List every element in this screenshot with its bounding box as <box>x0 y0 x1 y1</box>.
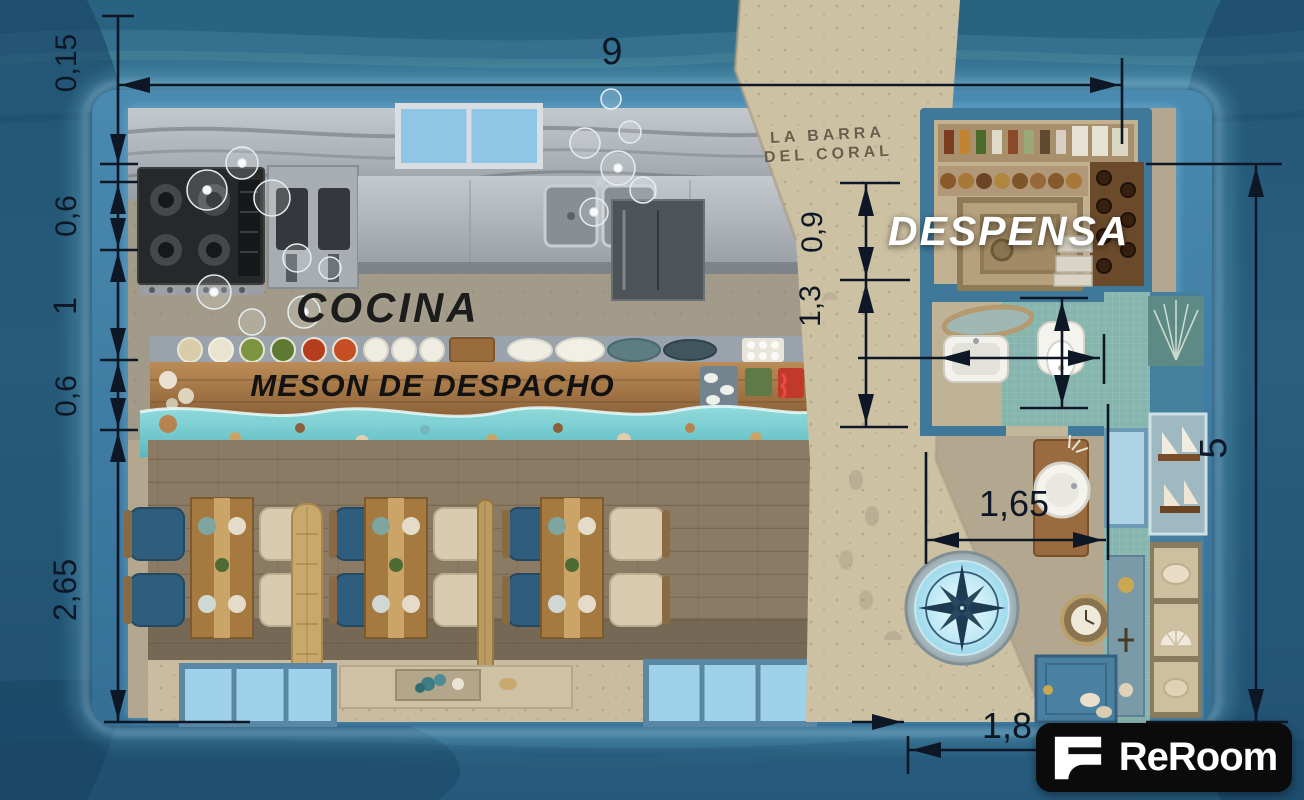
floorplan-canvas: 9 0,15 0,6 1 0,6 2,65 0,9 1,3 5 1,65 1,8… <box>0 0 1304 800</box>
dim-pantry-depth: 0,9 <box>796 211 829 253</box>
dim-wall-offset: 0,15 <box>50 34 83 92</box>
refrigerator <box>612 200 704 300</box>
side-window <box>1106 430 1146 526</box>
skylight-window <box>398 106 540 166</box>
bathroom <box>920 292 1116 436</box>
dim-kitchen-aisle: 1 <box>47 297 83 315</box>
entry-door <box>1036 656 1116 722</box>
reroom-watermark: ReRoom <box>1036 723 1292 792</box>
reroom-logo-icon <box>1051 734 1105 782</box>
dim-total-width: 9 <box>601 31 622 73</box>
spice-bowls-row <box>150 336 815 364</box>
ship-display-case <box>1150 414 1206 534</box>
service-counter-label: MESON DE DESPACHO <box>150 368 715 404</box>
dim-dining-depth: 2,65 <box>47 559 83 621</box>
pantry-label: DESPENSA <box>888 208 1130 255</box>
dim-total-height: 5 <box>1193 437 1235 458</box>
compass-rose-medallion <box>906 552 1018 664</box>
dim-vanity-width: 1,65 <box>979 483 1049 524</box>
dim-entry-width: 1,8 <box>982 705 1032 746</box>
kitchen-label: COCINA <box>296 284 480 332</box>
dim-kitchen-run: 0,6 <box>50 195 83 237</box>
dim-bathroom-depth: 1,3 <box>794 285 827 327</box>
pantry-room <box>920 108 1152 296</box>
coral-planter <box>340 666 572 708</box>
rattan-divider <box>292 504 322 678</box>
dim-counter-depth: 0,6 <box>50 375 83 417</box>
porthole-clock <box>1062 596 1110 644</box>
coral-fan-decor <box>1148 296 1204 366</box>
reroom-logo-text: ReRoom <box>1119 735 1277 780</box>
shell-niches <box>1150 542 1202 718</box>
